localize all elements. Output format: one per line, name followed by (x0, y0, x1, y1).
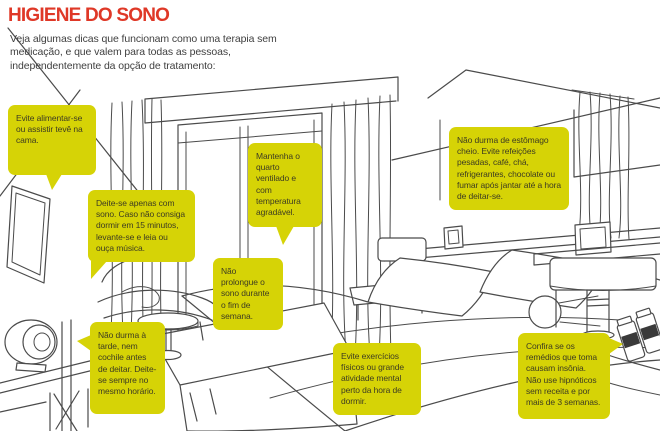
callout-medicines-text: Confira se os remédios que toma causam i… (526, 341, 600, 407)
callout-ventilation: Mantenha o quarto ventilado e com temper… (248, 143, 322, 227)
curtain-center (331, 95, 391, 356)
callout-tail-down-icon (91, 261, 107, 279)
callout-meals: Não durma de estômago cheio. Evite refei… (449, 127, 569, 210)
curtain-right (572, 90, 634, 239)
callout-tail-right-icon (609, 338, 623, 354)
callout-nap-text: Não durma à tarde, nem cochile antes de … (98, 330, 156, 396)
header: HIGIENE DO SONO Veja algumas dicas que f… (8, 5, 316, 73)
callout-tail-left-icon (77, 335, 91, 351)
callout-weekend: Não prolongue o sono durante o fim de se… (213, 258, 283, 330)
callout-weekend-text: Não prolongue o sono durante o fim de se… (221, 266, 269, 321)
tv (7, 186, 50, 283)
page-title: HIGIENE DO SONO (8, 5, 316, 27)
callout-sleep-only-text: Deite-se apenas com sono. Caso não consi… (96, 198, 185, 253)
callout-ventilation-text: Mantenha o quarto ventilado e com temper… (256, 151, 301, 217)
callout-meals-text: Não durma de estômago cheio. Evite refei… (457, 135, 561, 201)
callout-exercise: Evite exercícios físicos ou grande ativi… (333, 343, 421, 415)
fan (5, 320, 57, 372)
sleep-hygiene-infographic: HIGIENE DO SONO Veja algumas dicas que f… (0, 0, 660, 431)
callout-tv: Evite alimentar-se ou assistir tevê na c… (8, 105, 96, 175)
callout-tail-down-icon (276, 226, 294, 245)
callout-sleep-only: Deite-se apenas com sono. Caso não consi… (88, 190, 195, 262)
intro-text: Veja algumas dicas que funcionam como um… (10, 33, 316, 73)
callout-tv-text: Evite alimentar-se ou assistir tevê na c… (16, 113, 83, 145)
callout-medicines: Confira se os remédios que toma causam i… (518, 333, 610, 419)
callout-exercise-text: Evite exercícios físicos ou grande ativi… (341, 351, 404, 406)
callout-nap: Não durma à tarde, nem cochile antes de … (90, 322, 165, 414)
pillow-left (368, 258, 494, 316)
callout-tail-down-icon (46, 174, 62, 190)
